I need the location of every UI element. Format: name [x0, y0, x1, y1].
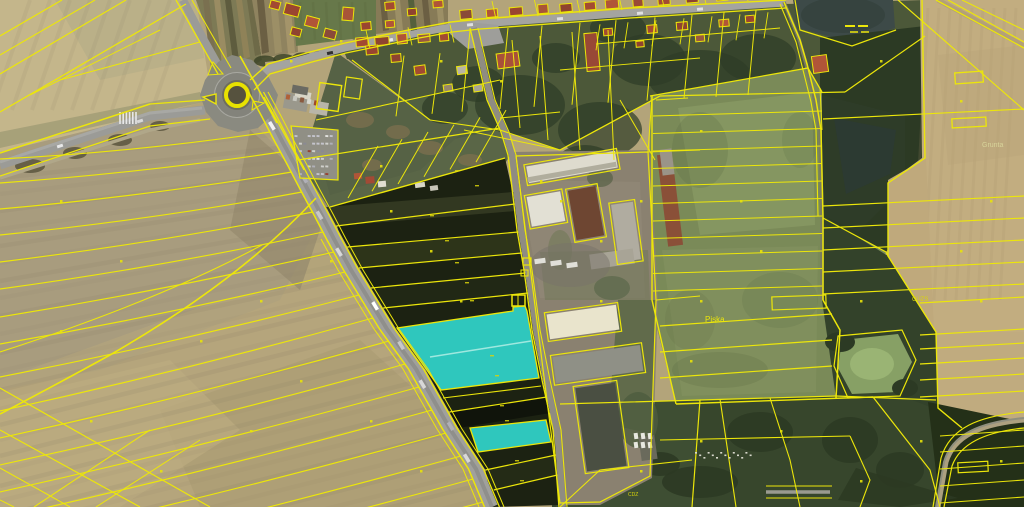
svg-text:Grunta: Grunta	[982, 142, 1004, 149]
svg-text:Piska: Piska	[705, 315, 725, 324]
svg-text:CDZ: CDZ	[628, 492, 638, 498]
svg-text:CUZS: CUZS	[912, 297, 928, 303]
